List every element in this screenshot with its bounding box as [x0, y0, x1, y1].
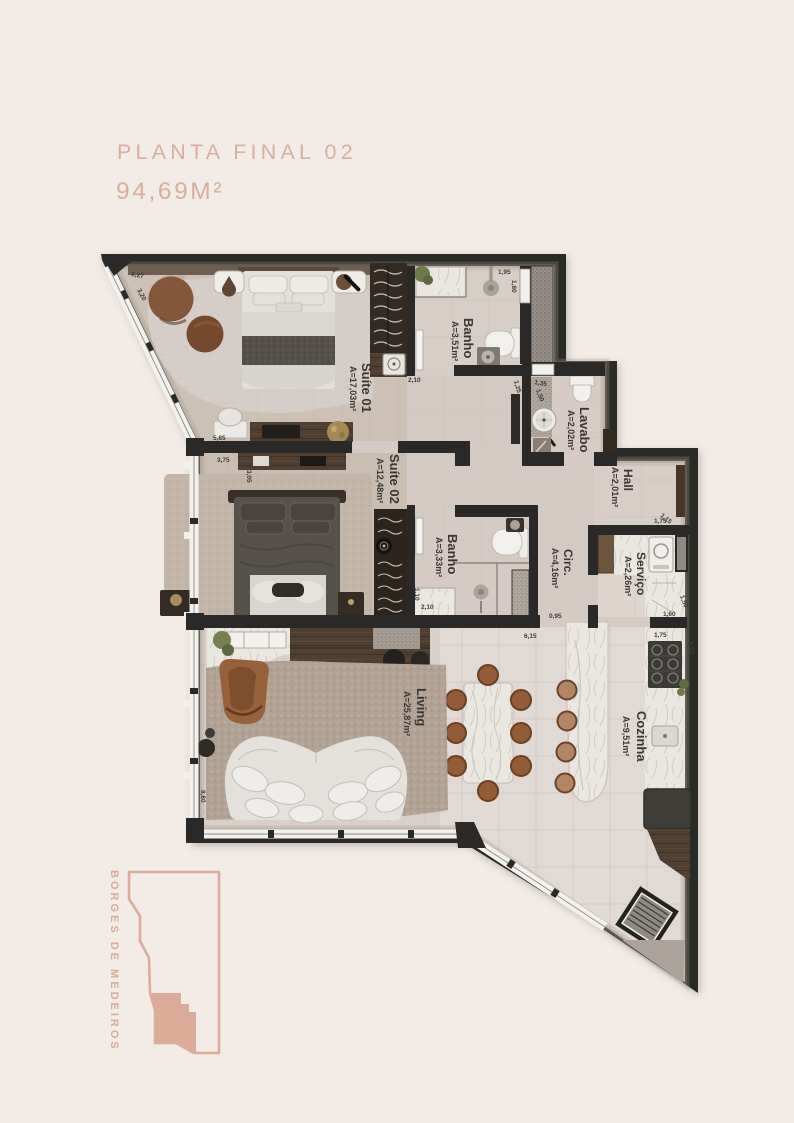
svg-text:Hall: Hall [621, 469, 635, 491]
svg-text:94,69M²: 94,69M² [116, 178, 224, 205]
svg-text:0,95: 0,95 [549, 613, 562, 620]
svg-text:3,05: 3,05 [245, 470, 252, 483]
svg-text:1,95: 1,95 [498, 269, 511, 276]
svg-text:A=3,33m²: A=3,33m² [434, 537, 444, 577]
svg-text:1,80: 1,80 [510, 280, 517, 293]
svg-text:2,10: 2,10 [408, 377, 421, 384]
svg-text:1,75: 1,75 [654, 632, 667, 639]
svg-text:A=2,01m²: A=2,01m² [610, 467, 620, 507]
svg-text:Living: Living [414, 688, 429, 726]
svg-text:Suíte 02: Suíte 02 [387, 454, 402, 504]
svg-text:Serviço: Serviço [634, 552, 648, 595]
svg-text:A=25,87m²: A=25,87m² [402, 691, 412, 736]
svg-text:1,75: 1,75 [654, 518, 667, 525]
svg-text:Banho: Banho [445, 534, 460, 575]
svg-text:1,10: 1,10 [413, 588, 420, 601]
svg-text:A=9,51m²: A=9,51m² [621, 716, 631, 756]
svg-text:Circ.: Circ. [561, 549, 575, 576]
svg-text:A=12,48m²: A=12,48m² [375, 458, 385, 503]
svg-text:A=2,26m²: A=2,26m² [623, 556, 633, 596]
svg-text:1,60: 1,60 [663, 611, 676, 618]
svg-text:2,10: 2,10 [421, 604, 434, 611]
svg-text:Suíte 01: Suíte 01 [359, 363, 374, 413]
svg-text:A=3,51m²: A=3,51m² [450, 321, 460, 361]
svg-text:A=4,16m²: A=4,16m² [550, 548, 560, 588]
svg-text:Cozinha: Cozinha [634, 711, 649, 762]
svg-text:5,85: 5,85 [213, 435, 226, 442]
svg-text:BORGES DE MEDEIROS: BORGES DE MEDEIROS [108, 870, 120, 1052]
svg-text:3,75: 3,75 [217, 457, 230, 464]
svg-text:A=17,03m²: A=17,03m² [348, 366, 358, 411]
svg-text:6,15: 6,15 [524, 633, 537, 640]
svg-text:A=2,02m²: A=2,02m² [566, 410, 576, 450]
svg-text:8,60: 8,60 [199, 790, 206, 803]
svg-text:Lavabo: Lavabo [577, 407, 592, 453]
svg-text:PLANTA FINAL 02: PLANTA FINAL 02 [117, 140, 357, 164]
svg-text:Banho: Banho [461, 318, 476, 359]
